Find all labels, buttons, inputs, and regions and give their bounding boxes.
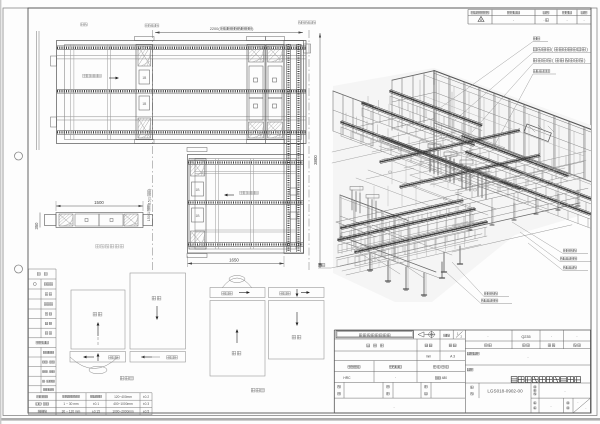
- svg-text:·: ·: [487, 335, 488, 339]
- svg-text:LGS018-0902-00: LGS018-0902-00: [487, 389, 523, 394]
- svg-text:15(1: 15(1: [148, 197, 152, 204]
- svg-text:·: ·: [564, 390, 565, 394]
- svg-text:1000~2000mm: 1000~2000mm: [112, 409, 134, 413]
- svg-text:mm: mm: [426, 355, 432, 359]
- svg-text:): ): [147, 204, 151, 205]
- svg-text:150(1: 150(1: [147, 212, 151, 221]
- svg-text:1B: 1B: [196, 214, 200, 218]
- svg-text:·: ·: [527, 356, 528, 360]
- svg-text:2200(: 2200(: [210, 26, 221, 31]
- svg-text:·: ·: [566, 18, 567, 23]
- svg-text:±0.1: ±0.1: [93, 402, 99, 406]
- svg-text:·: ·: [583, 18, 584, 23]
- svg-text:·: ·: [513, 18, 514, 23]
- svg-text:1B: 1B: [142, 76, 146, 80]
- svg-text:1650: 1650: [229, 258, 239, 263]
- svg-text:·: ·: [41, 402, 42, 406]
- svg-text:): ): [148, 189, 152, 190]
- svg-text:·: ·: [576, 335, 577, 339]
- svg-text:1 ~ 30 mm: 1 ~ 30 mm: [63, 402, 78, 406]
- svg-text:·: ·: [48, 370, 49, 374]
- svg-text:Q235: Q235: [521, 335, 530, 339]
- svg-text:1B: 1B: [142, 102, 146, 106]
- svg-text:480: 480: [442, 376, 448, 380]
- svg-text:±0.3: ±0.3: [143, 402, 149, 406]
- svg-text:·: ·: [543, 19, 544, 23]
- svg-text:·: ·: [550, 405, 551, 409]
- svg-text:·: ·: [45, 379, 46, 383]
- svg-text:3800: 3800: [313, 155, 318, 165]
- svg-text:1500: 1500: [94, 200, 104, 205]
- svg-text:±0.5: ±0.5: [143, 409, 149, 413]
- svg-text:·: ·: [551, 335, 552, 339]
- svg-text:·: ·: [577, 401, 578, 405]
- svg-text:·: ·: [393, 405, 394, 410]
- svg-text:120~400mm: 120~400mm: [114, 395, 132, 399]
- svg-text:·: ·: [585, 407, 586, 411]
- svg-text:HRC: HRC: [343, 376, 351, 380]
- svg-text:1B: 1B: [196, 188, 200, 192]
- svg-text:±0.15: ±0.15: [92, 409, 100, 413]
- svg-text:350: 350: [34, 222, 39, 230]
- svg-text:·: ·: [395, 376, 396, 380]
- svg-text:·: ·: [48, 360, 49, 364]
- svg-text:30 ~ 120 mm: 30 ~ 120 mm: [62, 409, 81, 413]
- svg-text:A 3: A 3: [450, 355, 455, 359]
- svg-text:±0.2: ±0.2: [143, 395, 149, 399]
- svg-text:400~1000mm: 400~1000mm: [113, 402, 133, 406]
